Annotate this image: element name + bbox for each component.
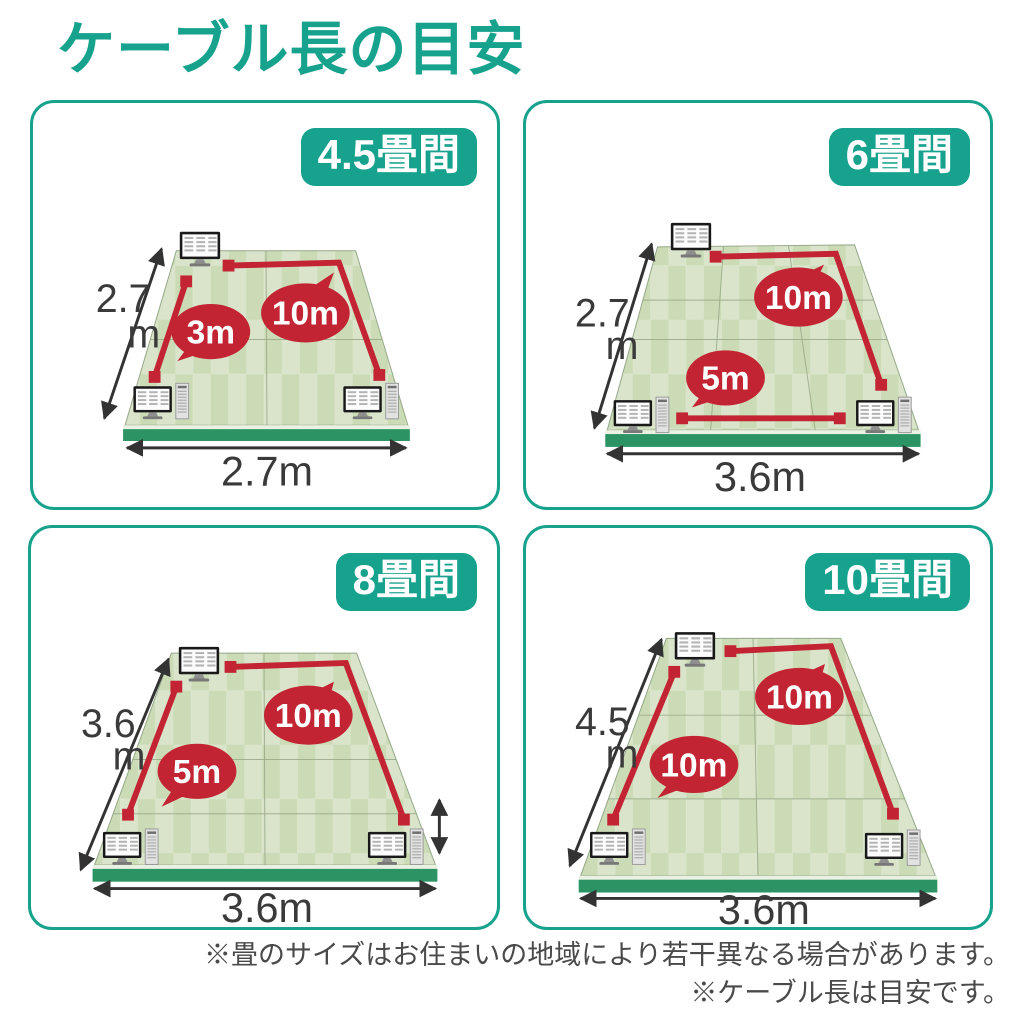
cable-long-label: 10m [272,296,339,333]
cable-long-label: 10m [275,698,342,735]
bottom-dimension-label: 3.6m [718,887,810,927]
cable-short-label: 5m [701,361,749,398]
cable-short-label: 5m [173,754,221,791]
cable-long-label: 10m [766,679,833,716]
footnote-tatami-size: ※畳のサイズはお住まいの地域により若干異なる場合があります。 [204,936,1010,974]
room-size-badge: 10畳間 [805,553,970,611]
footnotes: ※畳のサイズはお住まいの地域により若干異なる場合があります。 ※ケーブル長は目安… [204,936,1010,1013]
infographic-canvas: ケーブル長の目安 [0,0,1024,1024]
room-size-badge: 8畳間 [336,553,477,611]
bottom-dimension-label: 3.6m [714,454,806,500]
side-dimension-unit: m [606,324,639,368]
side-dimension-unit: m [127,312,160,356]
bottom-dimension-label: 2.7m [221,448,313,494]
cable-long-label: 10m [765,280,832,317]
panel-6-tatami: 5m 10m 2.7 m 3.6m 6畳間 [523,100,993,510]
page-title: ケーブル長の目安 [57,2,526,86]
side-dimension-unit: m [113,734,146,778]
floor-base [123,429,410,441]
footnote-cable-length: ※ケーブル長は目安です。 [204,974,1010,1012]
floor-base [605,434,920,447]
panel-8-tatami: 5m 10m 3.6 m 3.6m 8畳間 [28,525,500,930]
cable-short-label: 3m [187,314,235,351]
bottom-dimension-label: 3.6m [221,885,313,927]
panel-4-5-tatami: 3m 10m 2.7 m 2.7m 4.5畳間 [30,100,500,510]
cable-short-label: 10m [660,747,727,784]
room-size-badge: 4.5畳間 [301,128,477,186]
panel-10-tatami: 10m 10m 4.5 m 3.6m 10畳間 [523,525,993,930]
side-dimension-unit: m [606,732,639,776]
floor-base [93,869,438,882]
room-size-badge: 6畳間 [829,128,970,186]
